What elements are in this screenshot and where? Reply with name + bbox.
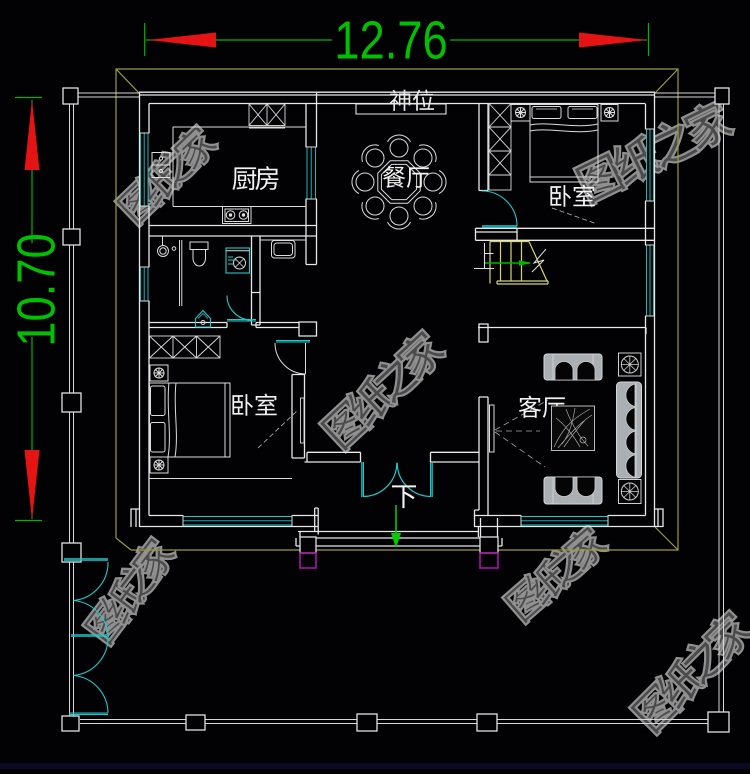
- svg-text:12.76: 12.76: [334, 10, 448, 71]
- svg-text:10.70: 10.70: [6, 233, 67, 347]
